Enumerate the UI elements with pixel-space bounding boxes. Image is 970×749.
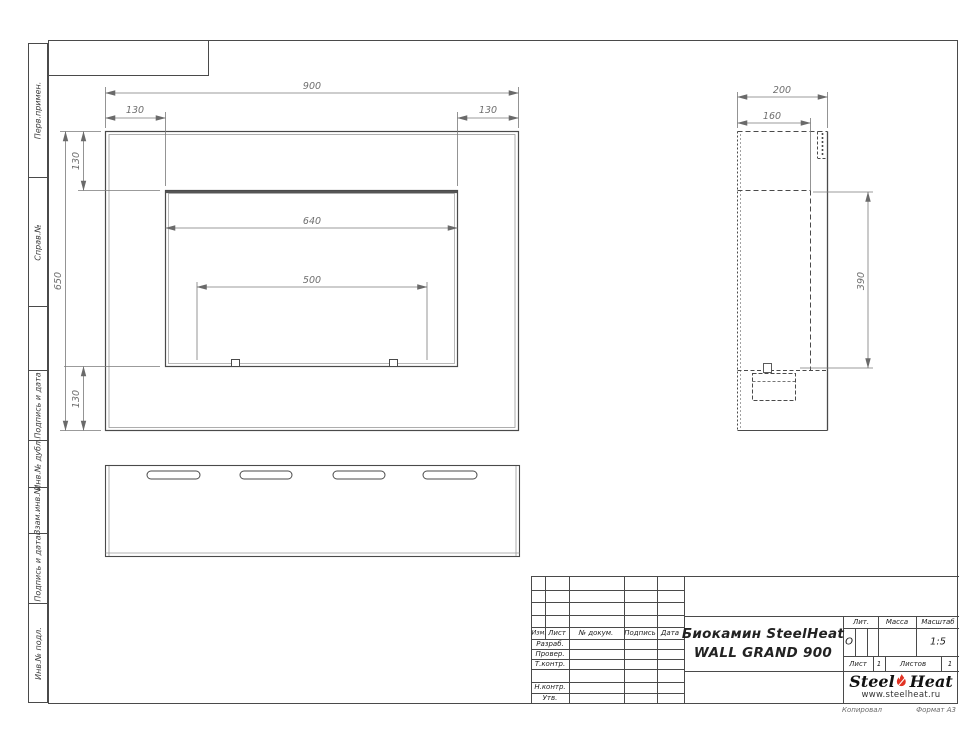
- doc-title-line1: Биокамин SteelHeat: [682, 626, 844, 642]
- logo-steel-text: Steel: [849, 674, 894, 690]
- burner-box-tab: [764, 364, 772, 373]
- burner-box: [753, 374, 796, 401]
- scale-label: Масштаб: [921, 618, 954, 626]
- dim-lower-height: 390: [856, 272, 867, 290]
- col-date: Дата: [661, 629, 679, 637]
- front-dimensions: [60, 87, 519, 431]
- vent-slot-1: [147, 471, 200, 479]
- row-utv: Утв.: [543, 694, 558, 702]
- title-block: Изм. Лист № докум. Подпись Дата Разраб. …: [531, 576, 959, 704]
- burner-tab-right: [390, 360, 398, 367]
- dim-front-height: 650: [53, 272, 64, 290]
- side-dimension-labels: 200 160 390: [763, 85, 867, 290]
- lit-label: Лит.: [853, 618, 869, 626]
- format-label: Формат А3: [916, 706, 956, 714]
- scale-value: 1:5: [930, 637, 946, 648]
- burner-tab-left: [232, 360, 240, 367]
- dim-inset-top-right: 130: [479, 105, 497, 116]
- front-dimension-labels: 900 130 130 650 130 130 640 500: [53, 81, 497, 408]
- dim-depth: 200: [773, 85, 791, 96]
- drawing-sheet: Перв.примен. Справ.№ Подпись и дата Инв.…: [0, 0, 970, 749]
- col-list: Лист: [548, 629, 566, 637]
- dim-inner-depth: 160: [763, 111, 781, 122]
- row-nkontr: Н.контр.: [534, 683, 565, 691]
- dim-inset-top-left: 130: [126, 105, 144, 116]
- steelheat-logo: Steel Heat www.steelheat.ru: [849, 674, 952, 700]
- vent-slot-4: [423, 471, 477, 479]
- dim-window-width: 640: [303, 216, 321, 227]
- vent-slot-2: [240, 471, 292, 479]
- doc-title-line2: WALL GRAND 900: [694, 645, 832, 661]
- dim-front-width: 900: [303, 81, 321, 92]
- row-prover: Провер.: [535, 650, 564, 658]
- side-view: [738, 132, 828, 431]
- sheets-value: 1: [948, 660, 952, 668]
- col-sign: Подпись: [624, 629, 656, 637]
- sheets-label: Листов: [900, 660, 926, 668]
- dim-inset-left-upper: 130: [71, 152, 82, 170]
- dim-inset-left-lower: 130: [71, 390, 82, 408]
- sheet-label: Лист: [849, 660, 867, 668]
- logo-heat-text: Heat: [910, 674, 953, 690]
- dim-burner-spacing: 500: [303, 275, 321, 286]
- bottom-view: [106, 466, 520, 557]
- massa-label: Масса: [886, 618, 908, 626]
- lit-value: О: [845, 637, 853, 648]
- flame-icon: [896, 674, 909, 690]
- row-razrab: Разраб.: [536, 640, 564, 648]
- side-dimensions: [738, 92, 874, 368]
- sheet-value: 1: [877, 660, 881, 668]
- copied-label: Копировал: [842, 706, 882, 714]
- vent-slot-3: [333, 471, 385, 479]
- row-tkontr: Т.контр.: [535, 660, 565, 668]
- col-doc: № докум.: [579, 629, 614, 637]
- col-izm: Изм.: [532, 630, 547, 637]
- logo-site-url: www.steelheat.ru: [862, 690, 941, 700]
